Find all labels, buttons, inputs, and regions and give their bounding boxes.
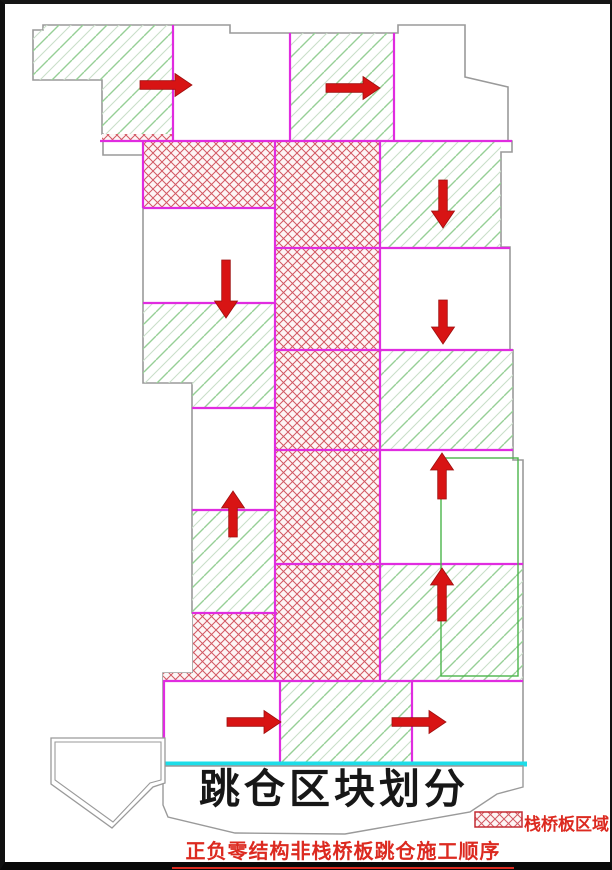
plan-title: 跳仓区块划分 [158,768,510,811]
block-left-row3 [143,303,275,408]
plan-caption: 正负零结构非栈桥板跳仓施工顺序 [172,835,514,869]
plan-stage: 跳仓区块划分 正负零结构非栈桥板跳仓施工顺序 栈桥板区域 [0,0,612,870]
block-center-column [275,141,380,681]
block-right-row3 [380,350,513,449]
legend-swatch-crosshatch [475,812,522,827]
block-top-left [33,25,173,134]
block-left-row6 [163,613,277,681]
site-plan-drawing [0,0,612,870]
legend-label: 栈桥板区域 [524,810,609,835]
corner-pennant-outline [51,738,165,828]
block-left-row1 [143,141,275,208]
